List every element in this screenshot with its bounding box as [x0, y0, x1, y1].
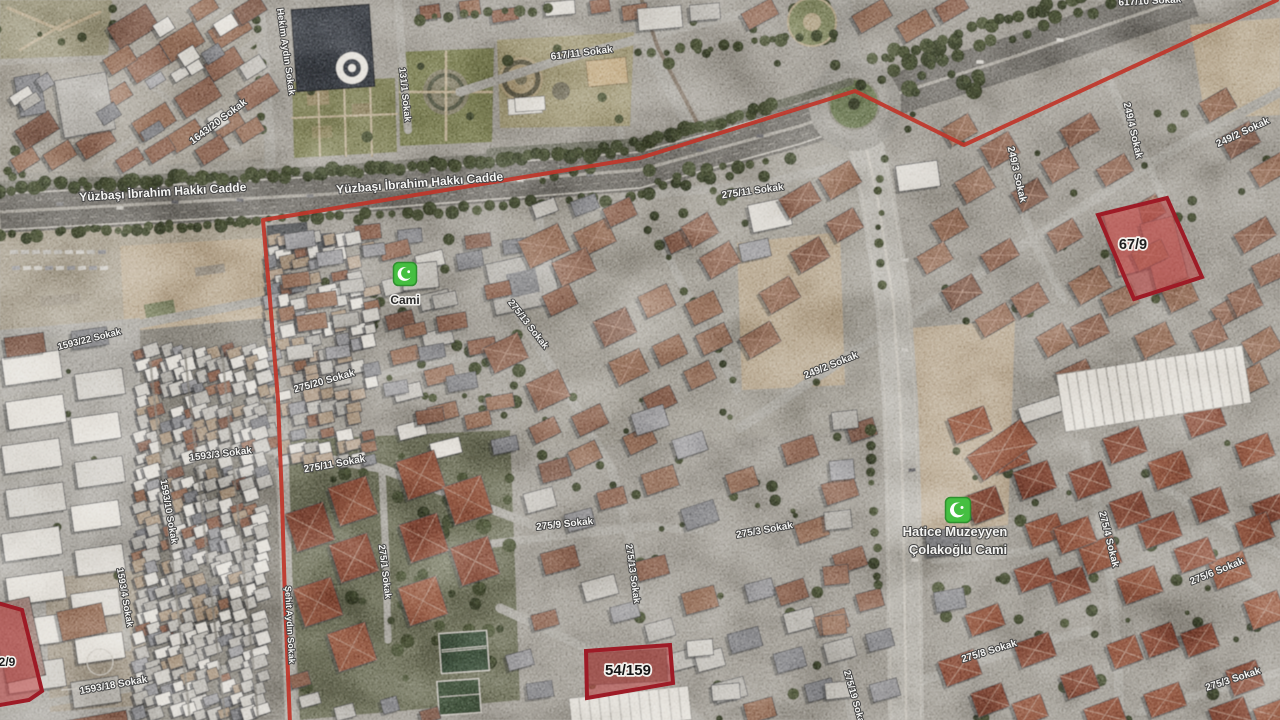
- svg-text:67/9: 67/9: [1119, 237, 1147, 253]
- svg-text:Cami: Cami: [390, 293, 419, 307]
- svg-text:Çolakoğlu Cami: Çolakoğlu Cami: [909, 542, 1007, 557]
- svg-text:Hatice Muzeyyen: Hatice Muzeyyen: [903, 524, 1008, 539]
- svg-text:2/9: 2/9: [0, 655, 16, 669]
- svg-text:54/159: 54/159: [605, 662, 651, 679]
